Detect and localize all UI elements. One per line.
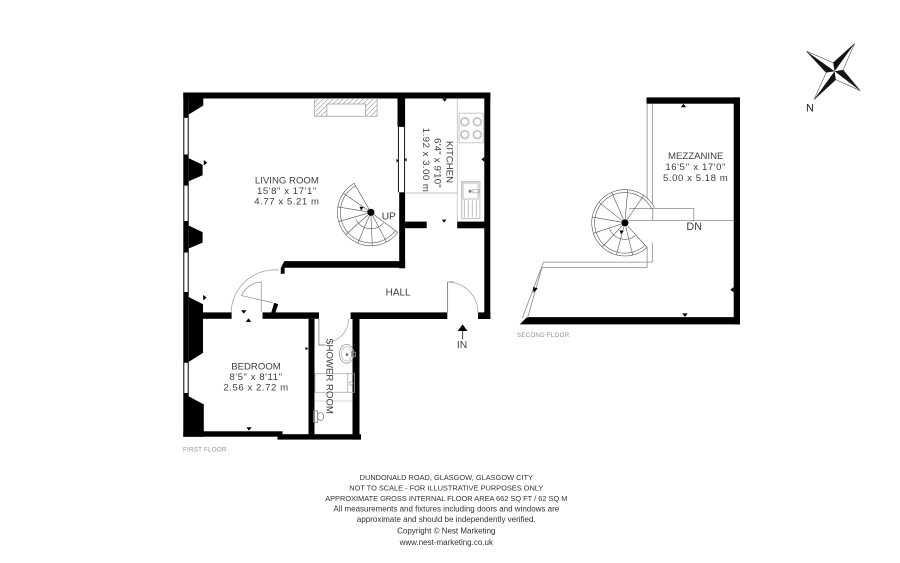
svg-text:4.77 x 5.21 m: 4.77 x 5.21 m (254, 197, 319, 208)
svg-text:8'5" x 8'11": 8'5" x 8'11" (229, 372, 282, 383)
svg-text:15'8" x 17'1": 15'8" x 17'1" (257, 186, 317, 197)
svg-text:BEDROOM: BEDROOM (231, 362, 281, 373)
svg-text:1.92 x 3.00 m: 1.92 x 3.00 m (420, 128, 431, 193)
svg-text:UP: UP (382, 212, 396, 223)
svg-text:6'4" x 9'10": 6'4" x 9'10" (432, 138, 443, 188)
svg-text:approximate and should be inde: approximate and should be independently … (357, 515, 536, 524)
svg-text:NOT TO SCALE - FOR ILLUSTRATIV: NOT TO SCALE - FOR ILLUSTRATIVE PURPOSES… (349, 483, 543, 492)
svg-text:16'5'' x 17'0": 16'5'' x 17'0" (665, 162, 726, 173)
svg-text:DN: DN (686, 221, 702, 233)
svg-text:SHOWER ROOM: SHOWER ROOM (323, 338, 334, 414)
svg-text:KITCHEN: KITCHEN (444, 141, 455, 183)
svg-text:HALL: HALL (386, 287, 411, 298)
svg-text:APPROXIMATE GROSS INTERNAL FLO: APPROXIMATE GROSS INTERNAL FLOOR AREA 66… (325, 494, 567, 503)
svg-text:5.00 x 5.18 m: 5.00 x 5.18 m (663, 173, 728, 184)
svg-text:Copyright © Nest Marketing: Copyright © Nest Marketing (397, 527, 495, 536)
svg-text:MEZZANINE: MEZZANINE (668, 151, 723, 162)
svg-text:All measurements and fixtures: All measurements and fixtures including … (333, 505, 559, 514)
svg-text:SECOND FLOOR: SECOND FLOOR (517, 332, 570, 339)
svg-text:FIRST FLOOR: FIRST FLOOR (183, 447, 227, 454)
svg-text:N: N (806, 102, 814, 114)
svg-text:IN: IN (457, 340, 467, 351)
svg-text:www.nest-marketing.co.uk: www.nest-marketing.co.uk (399, 538, 494, 547)
svg-text:DUNDONALD ROAD, GLASGOW, GLASG: DUNDONALD ROAD, GLASGOW, GLASGOW CITY (360, 473, 533, 482)
svg-text:LIVING ROOM: LIVING ROOM (255, 176, 319, 187)
svg-text:2.56 x 2.72 m: 2.56 x 2.72 m (223, 383, 288, 394)
